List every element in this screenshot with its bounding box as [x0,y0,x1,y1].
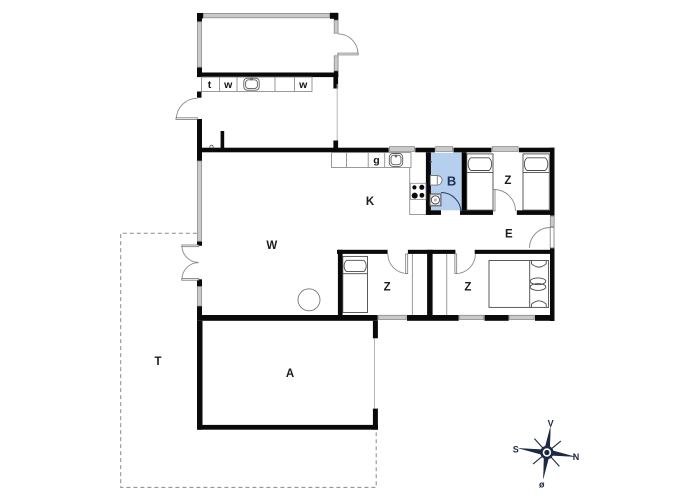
svg-text:E: E [505,228,513,240]
svg-text:K: K [366,196,375,208]
svg-text:t: t [208,79,212,91]
svg-text:W: W [266,240,277,252]
svg-text:Z: Z [384,282,391,294]
svg-text:T: T [154,356,161,368]
svg-text:N: N [573,452,580,462]
svg-text:Z: Z [464,282,471,294]
svg-text:ø: ø [539,479,545,489]
svg-text:w: w [223,79,233,91]
svg-text:S: S [513,444,519,454]
svg-text:Z: Z [504,175,511,187]
svg-text:g: g [373,154,379,166]
svg-text:V: V [548,418,554,428]
svg-text:B: B [447,174,456,189]
svg-text:A: A [286,368,294,380]
svg-text:w: w [298,79,308,91]
